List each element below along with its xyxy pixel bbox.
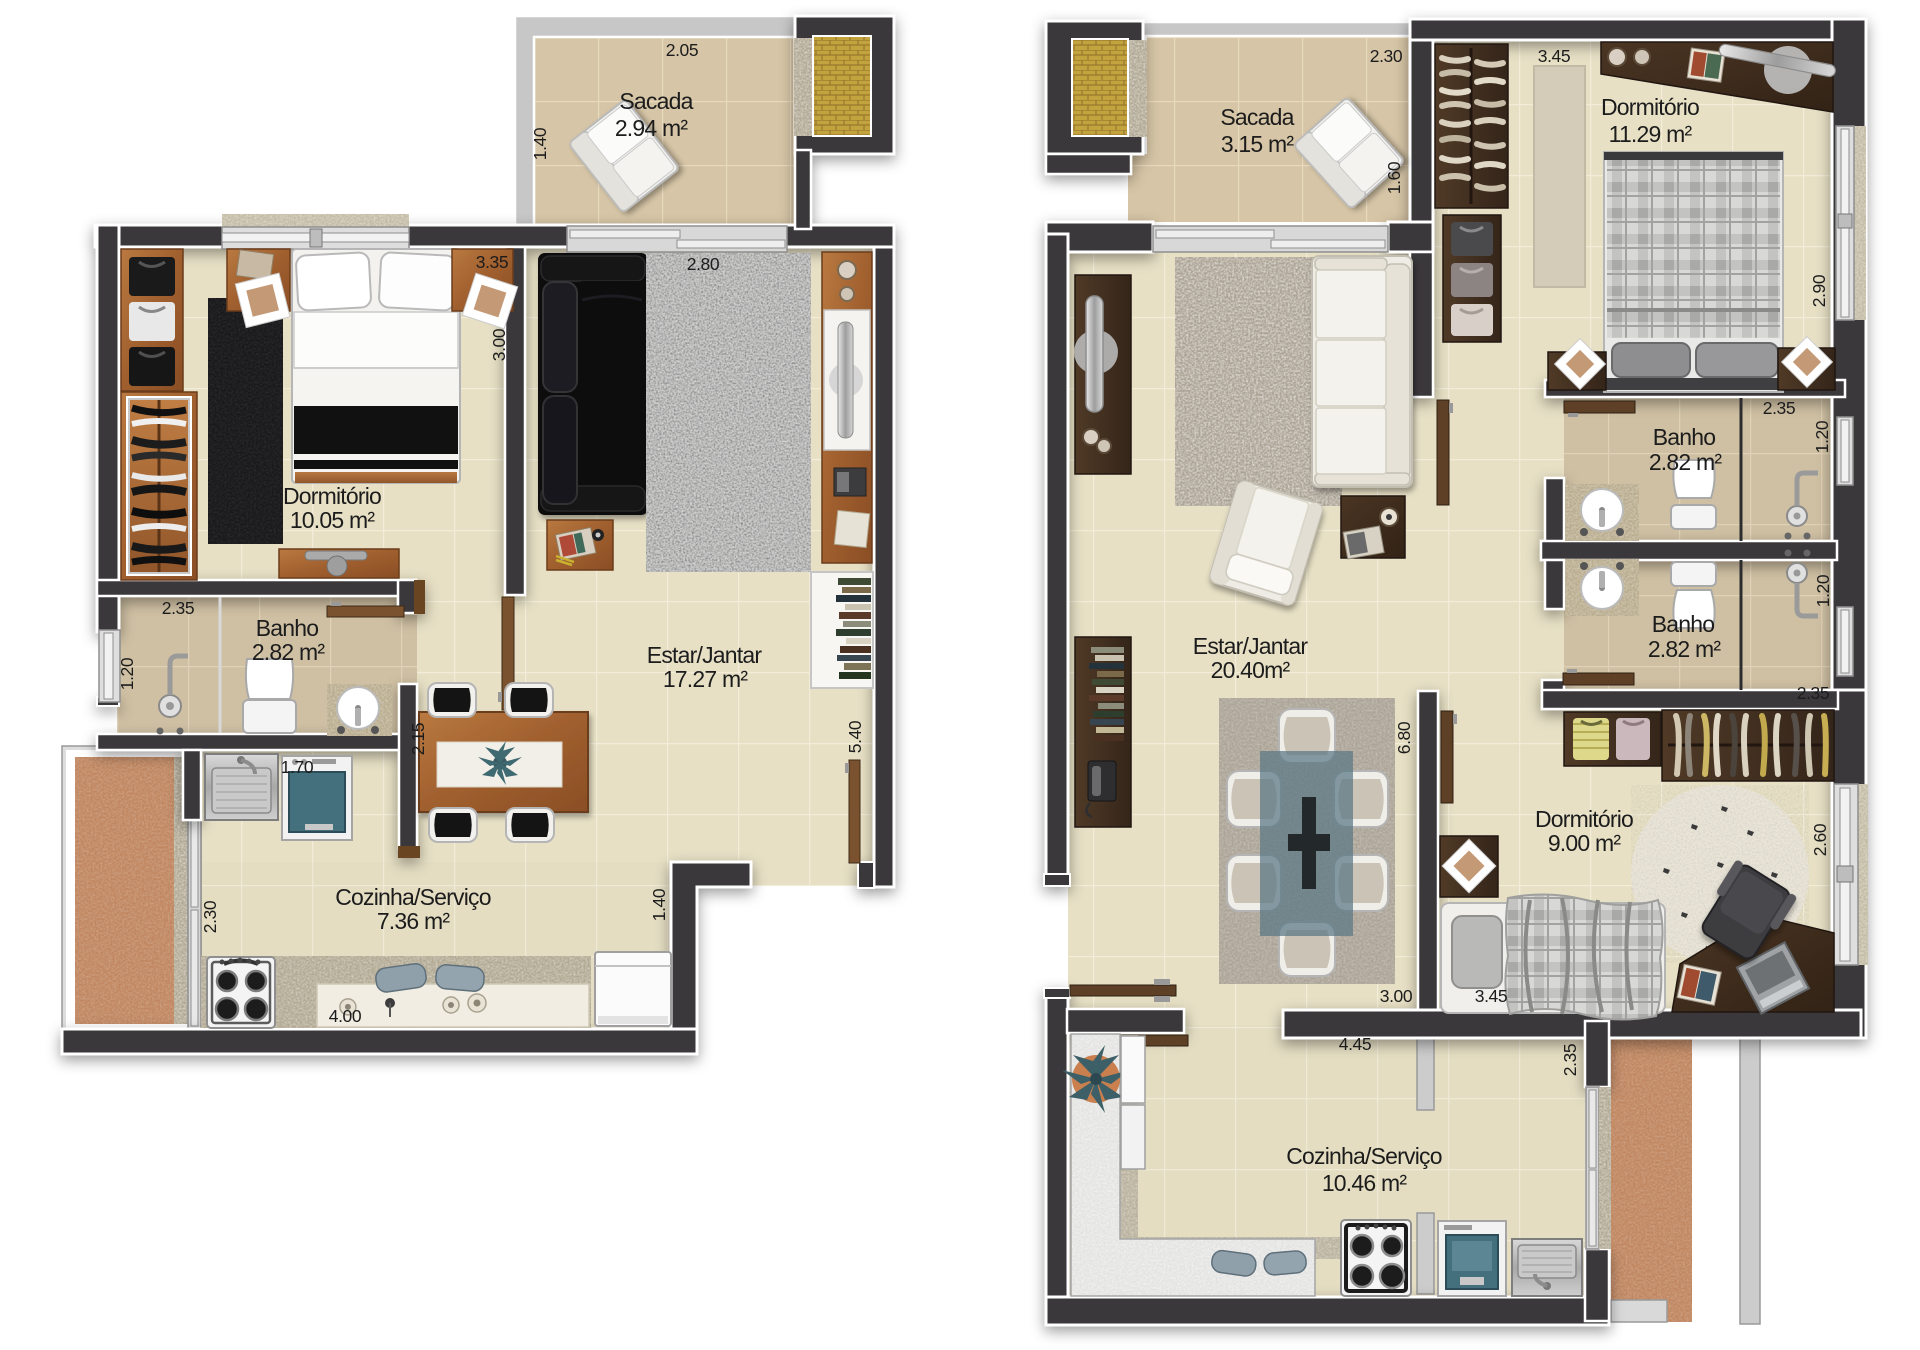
- svg-text:10.46 m²: 10.46 m²: [1322, 1170, 1408, 1196]
- svg-text:9.00 m²: 9.00 m²: [1548, 830, 1622, 856]
- svg-text:Banho: Banho: [1653, 424, 1716, 450]
- svg-text:1.70: 1.70: [281, 757, 314, 777]
- svg-text:Banho: Banho: [256, 615, 319, 641]
- svg-text:Cozinha/Serviço: Cozinha/Serviço: [335, 884, 490, 910]
- svg-text:2.60: 2.60: [1810, 823, 1830, 856]
- svg-text:3.35: 3.35: [476, 252, 508, 272]
- svg-text:4.45: 4.45: [1339, 1034, 1371, 1054]
- svg-text:3.00: 3.00: [1380, 986, 1413, 1006]
- svg-text:Dormitório: Dormitório: [283, 483, 381, 509]
- svg-text:2.82 m²: 2.82 m²: [1649, 449, 1723, 475]
- svg-text:1.20: 1.20: [117, 657, 137, 690]
- svg-text:2.35: 2.35: [1560, 1044, 1580, 1076]
- svg-text:1.20: 1.20: [1813, 574, 1833, 607]
- svg-text:Estar/Jantar: Estar/Jantar: [647, 642, 763, 668]
- svg-text:1.20: 1.20: [1812, 420, 1832, 453]
- svg-text:Sacada: Sacada: [619, 88, 693, 114]
- svg-text:Sacada: Sacada: [1220, 104, 1294, 130]
- svg-text:Dormitório: Dormitório: [1535, 806, 1633, 832]
- svg-text:3.00: 3.00: [489, 328, 509, 361]
- svg-text:2.80: 2.80: [687, 254, 720, 274]
- svg-text:4.00: 4.00: [329, 1006, 362, 1026]
- svg-text:6.80: 6.80: [1394, 721, 1414, 754]
- svg-text:11.29 m²: 11.29 m²: [1609, 121, 1693, 147]
- svg-text:3.45: 3.45: [1538, 46, 1570, 66]
- svg-text:2.94 m²: 2.94 m²: [615, 115, 689, 141]
- svg-text:2.35: 2.35: [162, 598, 194, 618]
- svg-text:2.82 m²: 2.82 m²: [252, 639, 326, 665]
- svg-text:Banho: Banho: [1652, 611, 1715, 637]
- svg-text:5.40: 5.40: [845, 720, 865, 753]
- svg-text:1.40: 1.40: [530, 127, 550, 160]
- svg-text:2.15: 2.15: [408, 723, 428, 755]
- svg-text:2.82 m²: 2.82 m²: [1648, 636, 1722, 662]
- svg-text:10.05 m²: 10.05 m²: [290, 507, 376, 533]
- svg-text:Dormitório: Dormitório: [1601, 94, 1699, 120]
- svg-text:2.35: 2.35: [1763, 398, 1795, 418]
- svg-text:2.30: 2.30: [1370, 46, 1403, 66]
- svg-text:3.15 m²: 3.15 m²: [1221, 131, 1295, 157]
- svg-text:Cozinha/Serviço: Cozinha/Serviço: [1286, 1143, 1441, 1169]
- svg-text:7.36 m²: 7.36 m²: [377, 908, 451, 934]
- svg-text:2.35: 2.35: [1797, 683, 1829, 703]
- svg-text:2.90: 2.90: [1809, 274, 1829, 307]
- svg-text:2.05: 2.05: [666, 40, 698, 60]
- svg-text:3.45: 3.45: [1475, 986, 1507, 1006]
- svg-text:1.40: 1.40: [649, 888, 669, 921]
- svg-text:20.40m²: 20.40m²: [1211, 657, 1291, 683]
- svg-text:1.60: 1.60: [1384, 161, 1404, 194]
- svg-text:2.30: 2.30: [200, 900, 220, 933]
- svg-text:17.27 m²: 17.27 m²: [663, 666, 749, 692]
- svg-text:Estar/Jantar: Estar/Jantar: [1193, 633, 1309, 659]
